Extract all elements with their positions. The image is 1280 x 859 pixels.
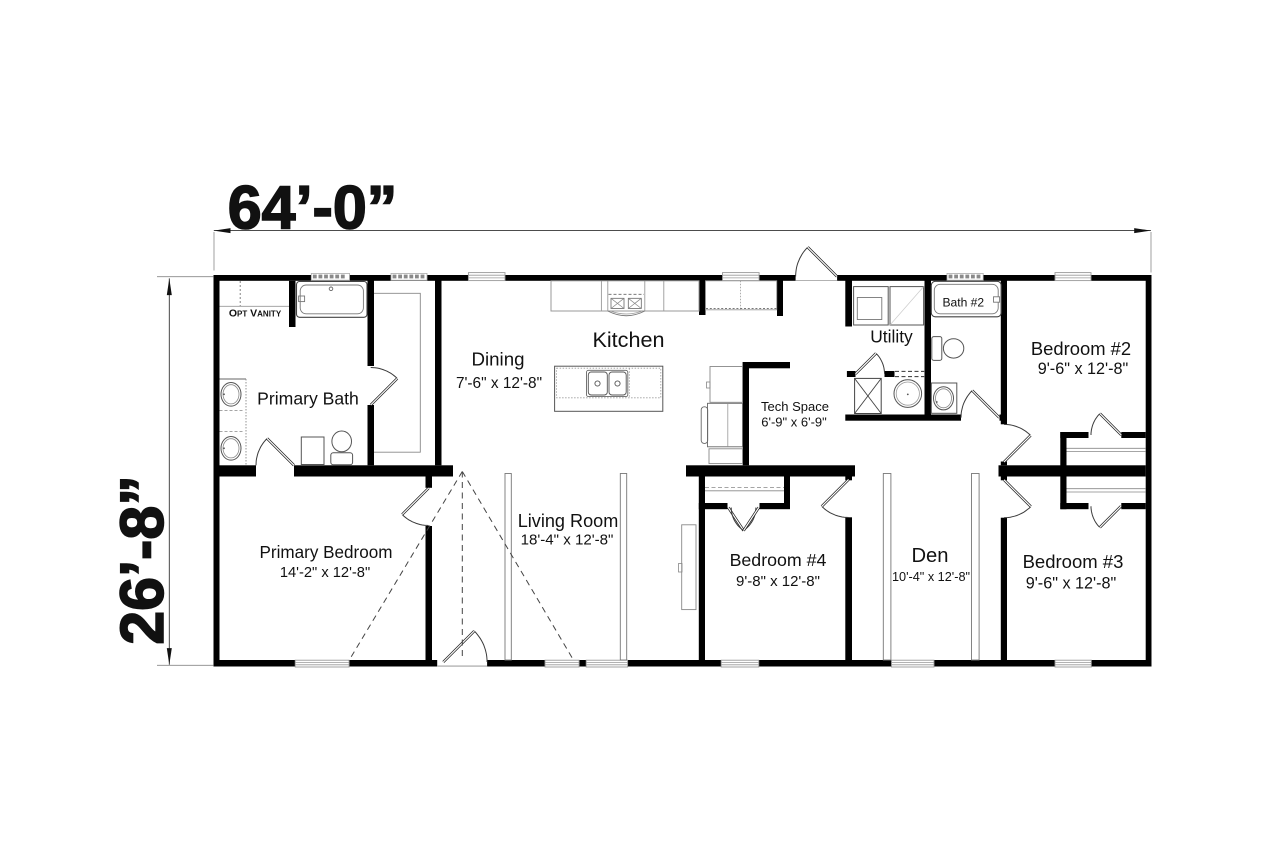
svg-text:10'-4" x 12'-8": 10'-4" x 12'-8" — [892, 570, 970, 584]
svg-text:6'-9" x 6'-9": 6'-9" x 6'-9" — [761, 415, 827, 430]
svg-text:Den: Den — [911, 545, 948, 567]
svg-text:OPT VANITY: OPT VANITY — [229, 308, 282, 320]
svg-text:26’-8”: 26’-8” — [108, 475, 176, 645]
svg-text:Kitchen: Kitchen — [592, 327, 664, 352]
svg-text:Bedroom #2: Bedroom #2 — [1031, 338, 1131, 359]
svg-text:14'-2" x 12'-8": 14'-2" x 12'-8" — [280, 565, 370, 581]
svg-text:Primary Bedroom: Primary Bedroom — [260, 543, 393, 562]
svg-text:18'-4" x 12'-8": 18'-4" x 12'-8" — [521, 532, 614, 549]
svg-text:9'-8" x 12'-8": 9'-8" x 12'-8" — [736, 573, 820, 590]
svg-text:9'-6" x 12'-8": 9'-6" x 12'-8" — [1038, 360, 1129, 378]
svg-text:9'-6" x 12'-8": 9'-6" x 12'-8" — [1026, 575, 1117, 593]
svg-text:Bedroom #4: Bedroom #4 — [730, 550, 827, 570]
svg-text:Dining: Dining — [472, 349, 525, 370]
svg-text:Bedroom #3: Bedroom #3 — [1023, 551, 1124, 572]
svg-text:Bath #2: Bath #2 — [942, 295, 984, 309]
svg-text:Primary Bath: Primary Bath — [257, 389, 359, 409]
svg-text:Tech Space: Tech Space — [761, 399, 829, 414]
svg-text:64’-0”: 64’-0” — [228, 174, 398, 242]
svg-text:7'-6" x 12'-8": 7'-6" x 12'-8" — [456, 375, 542, 392]
svg-text:Utility: Utility — [870, 327, 913, 347]
svg-text:Living Room: Living Room — [518, 511, 619, 531]
